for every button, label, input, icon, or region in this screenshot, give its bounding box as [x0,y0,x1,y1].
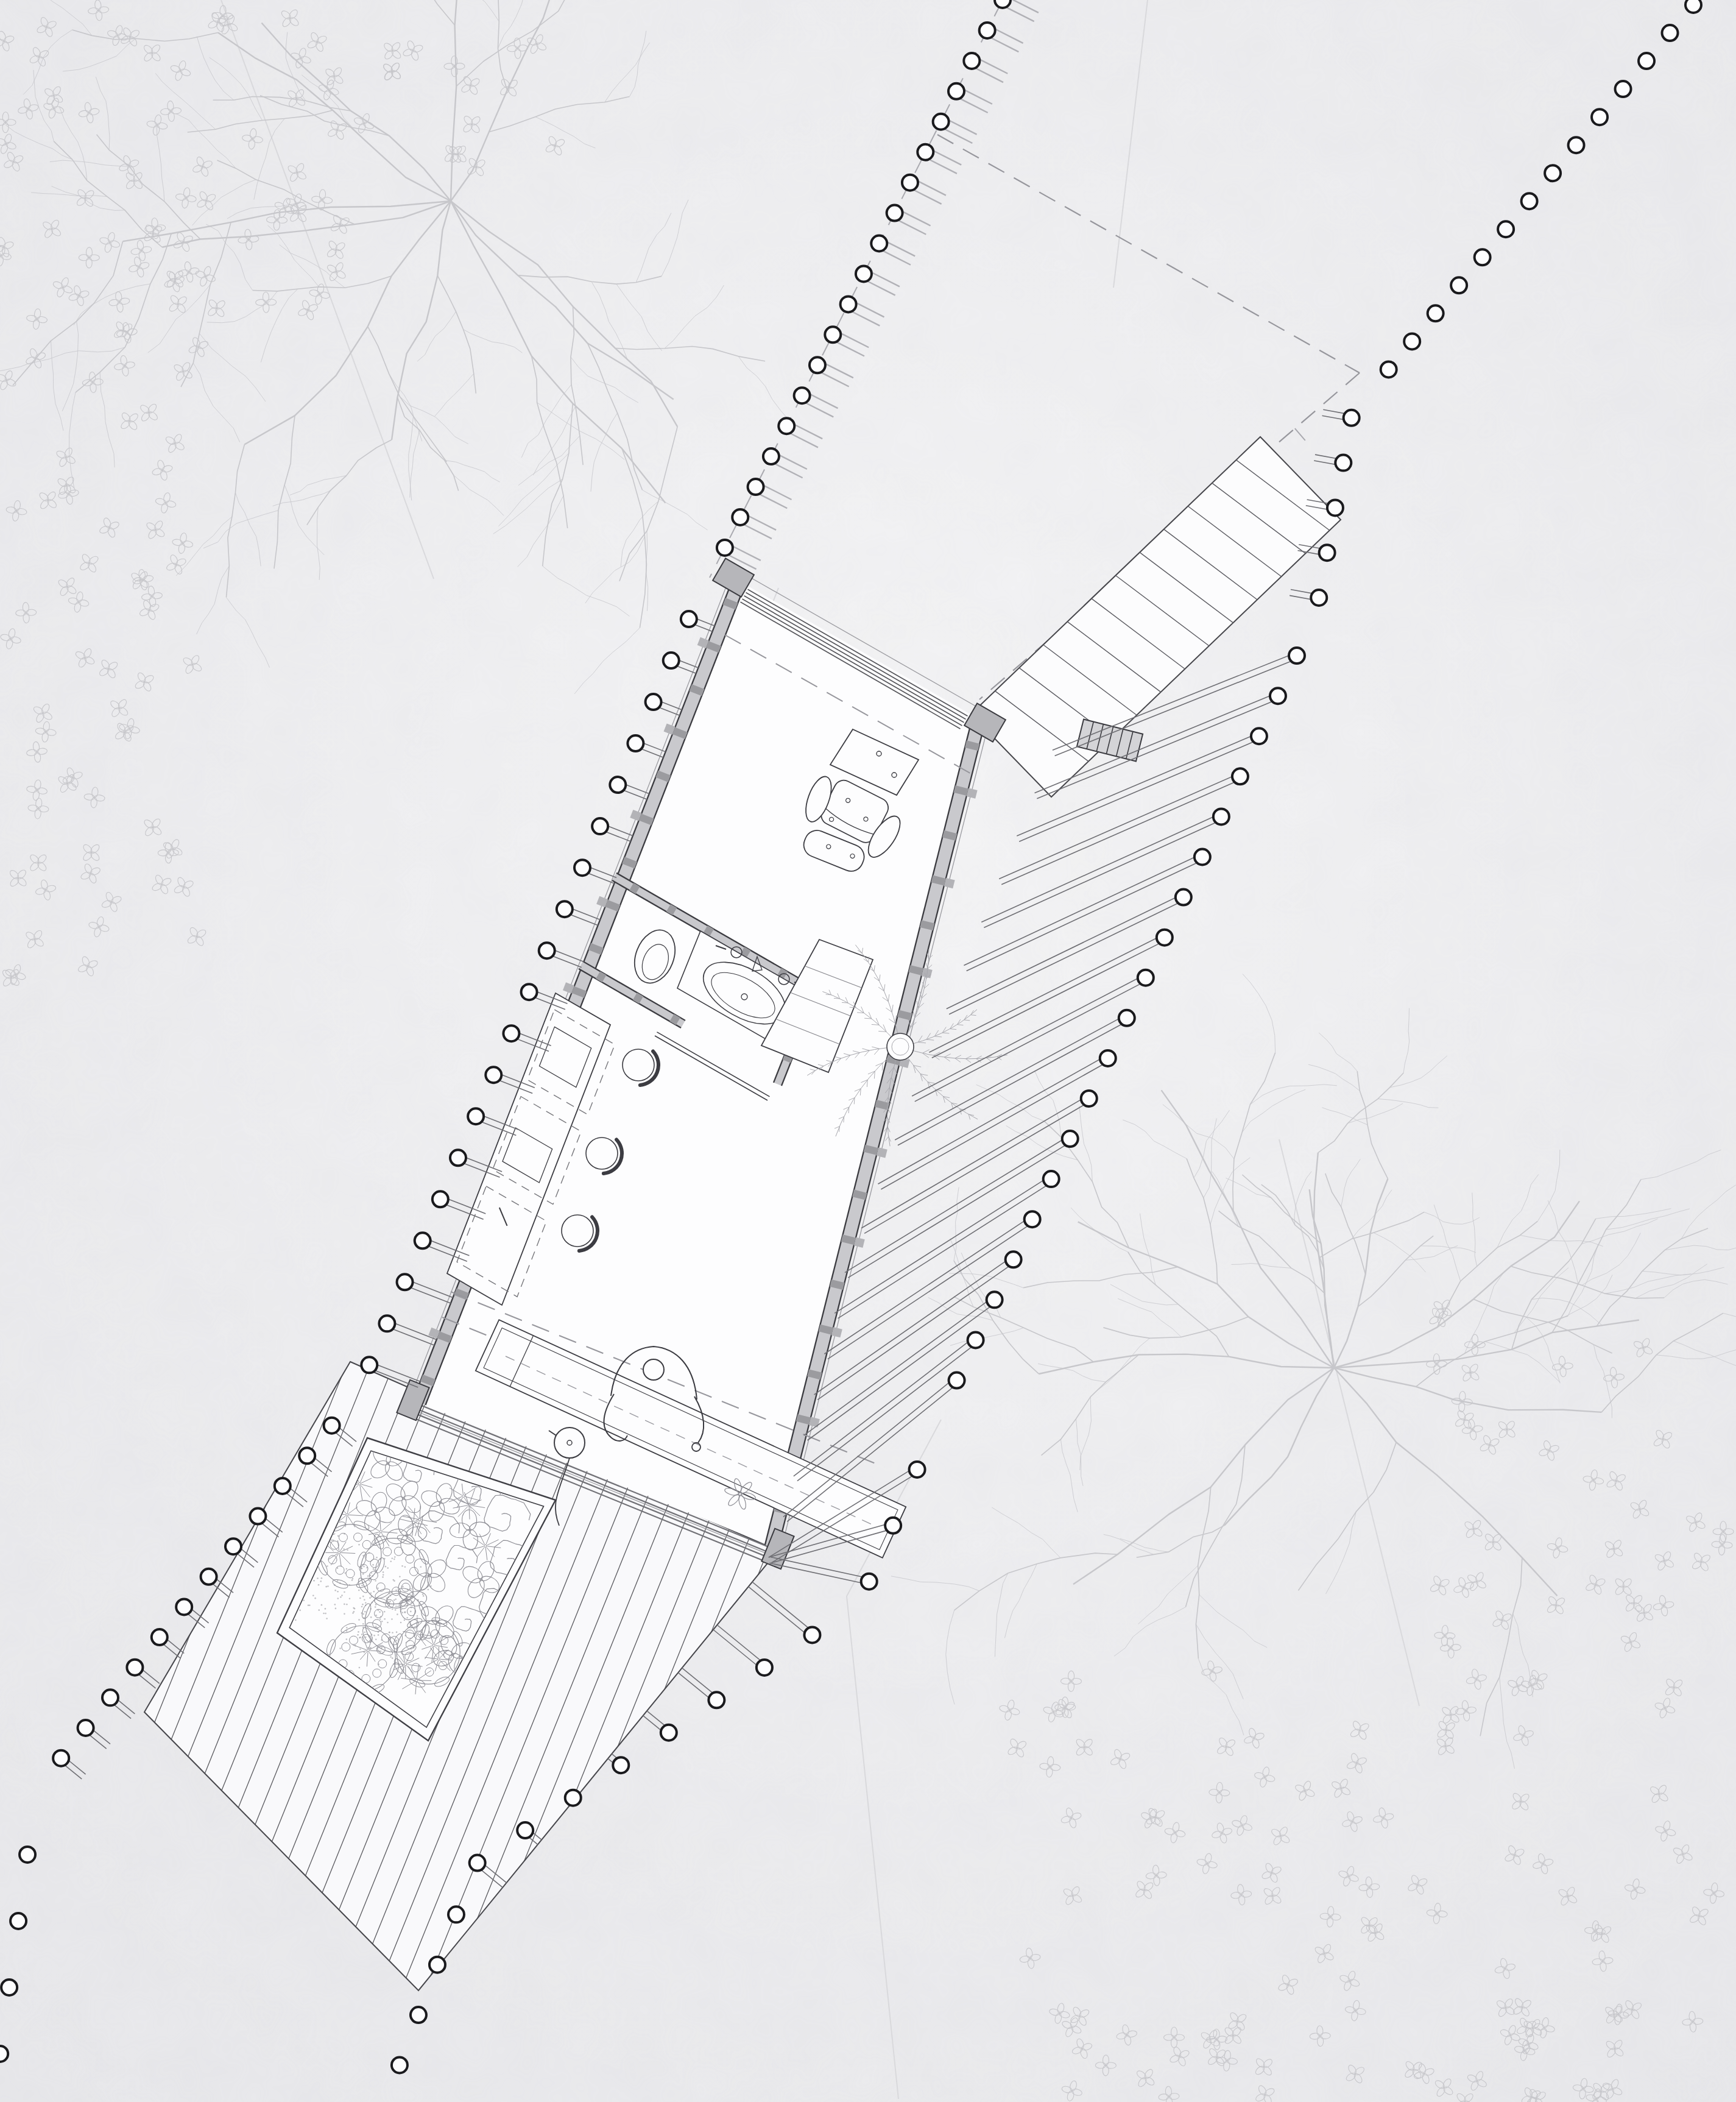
east-wall-tab [810,1421,819,1423]
east-wall-stud [797,1418,810,1421]
groundcover-dot [395,1590,397,1591]
site-plan-drawing [0,0,1736,2102]
groundcover-dot [312,1594,314,1596]
groundcover-dot [365,1637,367,1638]
pile [275,1478,291,1494]
groundcover-dot [377,1588,379,1590]
groundcover-dot [361,1606,363,1608]
pile [1592,109,1607,125]
groundcover-dot [334,1584,336,1586]
palm-needle [826,994,831,995]
west-wall-stud [657,774,669,779]
groundcover-dot [394,1556,396,1558]
bath-south-wall-stud [636,994,640,1002]
groundcover-dot [369,1604,371,1606]
groundcover-dot [404,1619,406,1621]
pile [610,777,626,793]
groundcover-dot [365,1602,367,1604]
groundcover-dot [378,1610,379,1612]
pile [933,114,949,130]
pile [1639,53,1654,69]
groundcover-dot [428,1589,429,1591]
dandelion-spoke [417,1617,417,1632]
groundcover-dot [323,1613,325,1615]
groundcover-dot [369,1580,371,1582]
groundcover-dot [348,1584,350,1586]
groundcover-dot [370,1608,372,1610]
groundcover-dot [372,1575,373,1577]
groundcover-dot [353,1607,355,1609]
groundcover-dot [369,1635,371,1637]
pile [794,387,810,403]
pile [78,1720,94,1736]
groundcover-dot [378,1663,379,1665]
groundcover-dot [381,1647,383,1649]
groundcover-dot [375,1580,376,1582]
groundcover-dot [370,1616,372,1618]
groundcover-dot [346,1627,348,1629]
groundcover-dot [411,1588,412,1590]
groundcover-dot [401,1609,403,1611]
groundcover-dot [389,1601,391,1602]
groundcover-dot [362,1604,364,1605]
groundcover-dot [369,1552,370,1554]
east-wall-stud [876,1103,889,1106]
groundcover-dot [387,1567,389,1569]
groundcover-dot [399,1576,401,1577]
pile [995,0,1011,8]
east-wall-stud [954,789,967,792]
groundcover-dot [369,1578,371,1580]
pile [1251,728,1267,744]
groundcover-dot [326,1618,328,1619]
east-wall-stud [932,879,945,882]
groundcover-dot [383,1652,384,1654]
pile [565,1790,581,1806]
pile [592,818,608,834]
pile [1062,1131,1078,1147]
groundcover-dot [361,1612,363,1614]
groundcover-dot [370,1647,372,1649]
groundcover-dot [320,1580,322,1582]
groundcover-dot [428,1574,429,1576]
pile [1327,500,1343,515]
pile [468,1108,484,1124]
groundcover-dot [392,1632,393,1633]
groundcover-dot [343,1548,345,1550]
groundcover-dot [393,1580,395,1582]
pile [152,1629,168,1645]
groundcover-dot [352,1578,354,1580]
pile [1006,1251,1021,1267]
groundcover-dot [402,1586,404,1588]
groundcover-dot [386,1602,388,1604]
east-wall-stud [898,1014,911,1017]
pile [708,1692,724,1708]
west-wall-stud [439,1335,451,1340]
groundcover-dot [384,1618,386,1620]
groundcover-dot [318,1584,320,1586]
east-wall-stud [808,1373,821,1376]
groundcover-dot [362,1555,364,1557]
groundcover-dot [330,1541,332,1543]
east-wall-stud [853,1193,866,1196]
groundcover-dot [370,1574,372,1576]
groundcover-dot [395,1609,397,1611]
groundcover-dot [321,1604,323,1606]
pile [1451,277,1467,293]
pile [432,1191,448,1207]
groundcover-dot [422,1593,424,1595]
pile [0,2046,8,2062]
groundcover-dot [400,1611,402,1613]
groundcover-dot [344,1533,345,1535]
groundcover-dot [346,1568,348,1570]
pile [748,479,764,495]
groundcover-dot [375,1638,377,1640]
pile [448,1906,464,1922]
groundcover-dot [396,1632,398,1633]
west-wall-stud [590,946,602,951]
groundcover-dot [384,1611,386,1613]
pile [361,1357,377,1373]
groundcover-dot [346,1630,348,1632]
groundcover-dot [375,1570,377,1572]
groundcover-dot [400,1596,401,1598]
pile [1157,930,1173,946]
pile [732,509,748,525]
pile [429,1957,445,1973]
groundcover-dot [318,1609,320,1611]
groundcover-dot [361,1585,363,1587]
groundcover-dot [400,1622,402,1624]
east-wall-stud [909,969,922,972]
pile [450,1150,466,1166]
groundcover-dot [387,1622,389,1624]
groundcover-dot [391,1618,393,1620]
groundcover-dot [381,1621,383,1623]
pile [871,236,887,252]
pile [681,611,697,627]
groundcover-dot [353,1611,355,1613]
pile [987,1292,1003,1308]
groundcover-dot [373,1591,375,1593]
pile [19,1847,35,1863]
groundcover-dot [314,1598,316,1599]
groundcover-dot [359,1667,361,1669]
groundcover-dot [390,1592,392,1594]
pile [1685,0,1701,13]
groundcover-dot [388,1602,390,1604]
groundcover-dot [337,1580,339,1582]
groundcover-dot [375,1606,376,1608]
palm-needle [834,998,839,999]
groundcover-dot [317,1577,319,1579]
groundcover-dot [389,1632,390,1633]
groundcover-dot [417,1599,419,1601]
groundcover-dot [360,1567,362,1569]
groundcover-dot [362,1613,364,1615]
groundcover-dot [375,1626,377,1627]
pile [411,2007,426,2023]
pile [856,266,872,281]
groundcover-dot [390,1656,392,1658]
east-wall-tab [900,1062,909,1064]
groundcover-dot [411,1596,412,1598]
groundcover-dot [351,1579,353,1581]
groundcover-dot [393,1599,395,1601]
groundcover-dot [395,1598,397,1600]
bath-north-wall-stud [743,949,747,956]
groundcover-dot [344,1613,345,1615]
west-wall-stud [623,860,635,865]
groundcover-dot [373,1568,375,1570]
groundcover-dot [359,1637,361,1638]
groundcover-dot [362,1596,364,1598]
pile [613,1757,629,1773]
pile [627,735,643,751]
west-wall-tab [598,900,607,903]
groundcover-dot [379,1559,381,1560]
groundcover-dot [363,1566,365,1568]
pile [201,1569,217,1585]
groundcover-dot [344,1573,346,1574]
groundcover-dot [325,1586,327,1588]
groundcover-dot [404,1612,406,1613]
groundcover-dot [393,1559,395,1560]
pile [1319,545,1335,561]
groundcover-dot [383,1574,384,1576]
groundcover-dot [337,1598,339,1599]
pile [1025,1211,1040,1227]
pile [415,1233,431,1248]
east-wall-tab [945,882,954,885]
pile [379,1315,395,1331]
pile [968,1332,984,1348]
pile [1498,221,1514,237]
pile [1,1980,17,1995]
pile [557,901,573,917]
groundcover-dot [397,1613,398,1615]
pile [397,1274,413,1290]
pile [810,357,825,373]
pile [663,653,679,668]
groundcover-dot [408,1601,410,1602]
groundcover-dot [392,1608,393,1610]
west-wall-stud [607,904,619,908]
groundcover-dot [364,1611,366,1613]
groundcover-dot [420,1566,422,1568]
bath-north-wall-stud [632,885,637,892]
groundcover-dot [364,1599,365,1601]
groundcover-dot [359,1648,361,1650]
pile [1568,137,1584,153]
east-wall-stud [921,924,934,927]
groundcover-dot [392,1557,393,1559]
east-wall-tab [967,792,976,794]
groundcover-dot [397,1605,399,1607]
groundcover-dot [357,1634,359,1636]
pile [299,1448,315,1463]
groundcover-dot [379,1612,381,1613]
pile [10,1913,26,1929]
pile [521,984,537,1000]
stool-seat [562,1215,593,1247]
groundcover-dot [390,1560,392,1562]
groundcover-dot [381,1639,383,1641]
groundcover-dot [335,1608,337,1610]
groundcover-dot [334,1604,336,1605]
palm-pot [887,1033,914,1060]
groundcover-dot [384,1558,386,1560]
groundcover-dot [362,1623,364,1625]
bath-north-wall-stud [707,927,711,935]
groundcover-dot [337,1567,339,1569]
pile [392,2057,408,2073]
pile [1232,768,1248,784]
groundcover-dot [365,1604,367,1606]
groundcover-dot [327,1585,329,1587]
groundcover-dot [392,1657,393,1659]
pile [1081,1091,1097,1106]
pile [646,694,662,710]
pile [53,1750,69,1766]
groundcover-dot [340,1596,342,1598]
pile [1522,193,1537,209]
groundcover-dot [325,1613,326,1615]
groundcover-dot [396,1640,398,1641]
groundcover-dot [386,1598,388,1599]
groundcover-dot [358,1544,360,1546]
east-wall-tab [833,1331,842,1334]
west-wall-tab [699,641,707,644]
groundcover-dot [371,1572,373,1574]
groundcover-dot [372,1602,373,1604]
pile [949,1373,965,1389]
pile [176,1599,192,1615]
pile [503,1025,519,1041]
east-wall-tab [855,1241,864,1244]
groundcover-dot [417,1615,418,1617]
groundcover-dot [372,1564,374,1566]
groundcover-dot [373,1600,375,1602]
pile [1270,688,1286,704]
groundcover-dot [404,1635,406,1637]
pile [1194,849,1210,865]
groundcover-dot [334,1590,336,1591]
groundcover-dot [303,1600,305,1602]
pile [902,175,918,191]
groundcover-dot [295,1619,297,1621]
west-wall-stud [422,1378,434,1383]
west-wall-stud [674,731,686,735]
east-wall-stud [944,834,956,837]
groundcover-dot [374,1569,376,1571]
pile [574,860,590,876]
west-wall-stud [724,601,736,606]
groundcover-dot [411,1607,412,1608]
east-wall-stud [864,1148,877,1152]
groundcover-dot [411,1602,412,1604]
groundcover-dot [347,1549,348,1551]
pile [717,540,733,556]
pile [470,1855,485,1871]
groundcover-dot [363,1617,365,1619]
groundcover-dot [361,1633,363,1635]
pile [1311,590,1327,606]
groundcover-dot [382,1576,384,1578]
pile [964,53,979,69]
groundcover-dot [406,1617,408,1619]
pile [517,1822,533,1838]
pile [1475,249,1491,265]
groundcover-dot [364,1652,365,1654]
pile [1428,305,1444,321]
pile [885,1518,901,1534]
groundcover-dot [367,1647,369,1649]
person-head [643,1359,664,1380]
groundcover-dot [367,1576,369,1577]
pile [804,1627,820,1643]
stool-seat [586,1138,618,1169]
drawing-viewport [0,0,1736,2102]
groundcover-dot [326,1565,328,1567]
groundcover-dot [308,1604,309,1606]
groundcover-dot [430,1585,432,1587]
pile [979,23,995,38]
pile [887,205,903,221]
east-wall-stud [842,1238,855,1241]
groundcover-dot [362,1627,364,1629]
groundcover-dot [325,1608,326,1610]
pile [1213,809,1229,824]
groundcover-dot [299,1610,301,1612]
groundcover-dot [346,1604,348,1605]
groundcover-dot [423,1595,425,1597]
groundcover-dot [410,1611,412,1613]
west-wall-tab [565,986,573,989]
pile [1176,890,1191,905]
groundcover-dot [376,1557,378,1559]
groundcover-dot [321,1577,323,1579]
groundcover-dot [369,1640,371,1642]
groundcover-dot [352,1612,354,1614]
groundcover-dot [358,1590,360,1591]
watering-reel [554,1428,585,1458]
pile [1662,25,1678,41]
groundcover-dot [349,1598,351,1599]
pile [1119,1010,1135,1026]
groundcover-dot [383,1571,384,1573]
pile [1335,455,1351,471]
pile [1381,361,1397,377]
east-wall-stud [831,1283,844,1286]
groundcover-dot [358,1631,359,1633]
pile [1545,165,1561,181]
groundcover-dot [362,1573,364,1575]
groundcover-dot [370,1592,372,1594]
groundcover-dot [344,1604,345,1605]
pile [917,144,933,160]
pile [825,327,841,342]
pile [841,296,856,312]
groundcover-dot [309,1604,311,1606]
bath-north-wall-stud [669,906,674,913]
groundcover-dot [388,1596,390,1598]
east-wall-stud [819,1328,832,1331]
pile [1043,1171,1059,1187]
pile [1344,410,1360,426]
